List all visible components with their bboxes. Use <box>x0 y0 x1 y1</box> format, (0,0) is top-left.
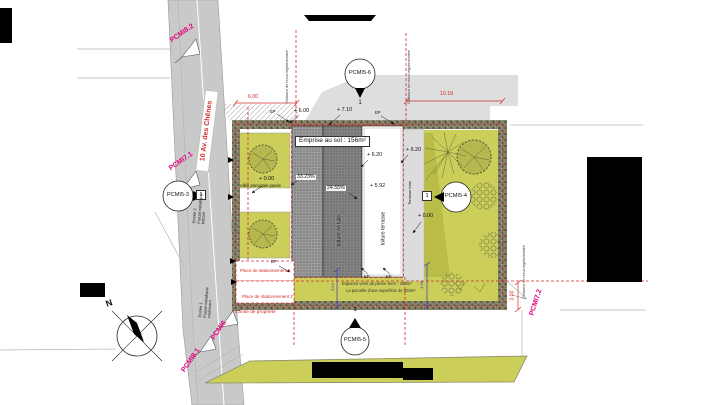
section-bottom-number: 1 <box>347 307 363 313</box>
elevation-ridge: + 7.10 <box>337 108 352 113</box>
tree <box>249 145 277 173</box>
section-bottom-label: PCMI5-5 <box>335 338 375 344</box>
elevation-terrace: + 0.00 <box>418 214 433 219</box>
shrub-cluster <box>479 232 505 258</box>
parking1-label: Place de stationnement 1 <box>240 269 291 274</box>
property-limit-label: Limite de propriété <box>236 311 276 316</box>
tree <box>249 220 277 248</box>
elevation-flat-roof-low: + 5.92 <box>369 184 386 189</box>
green-area-note-1: Espaces verts de pleine terre : 252m² <box>342 282 412 286</box>
roof-slope-right: 24.55% <box>326 186 346 191</box>
section-top-label: PCMI5-6 <box>340 71 380 77</box>
ep-downspout: EP <box>270 110 276 114</box>
site-plan: 10 Av. des Chênes PCMI8.2 PCMI7.1 PCMI6 … <box>0 0 721 405</box>
elevation-roof-deck: + 6.20 <box>406 148 421 153</box>
dim-green-right: 4.36 <box>420 275 424 295</box>
tile-roof-label: toiture en tuile <box>338 201 343 261</box>
section-top-number: 1 <box>352 100 368 106</box>
elevation-street: + 0.00 <box>259 177 274 182</box>
elevation-flat-roof: + 6.20 <box>366 153 383 158</box>
wood-deck-label: Terrasse bois <box>408 173 412 213</box>
plan-graphics <box>0 0 721 405</box>
tree-large <box>457 140 491 174</box>
section-right-number: 1 <box>422 191 432 201</box>
ep-downspout: EP <box>375 111 381 115</box>
ep-downspout: EP <box>386 275 392 279</box>
section-left-label: PCMI5-3 <box>158 193 198 199</box>
dim-front-width: 6.00 <box>248 95 258 100</box>
elevation-eave: + 6.00 <box>294 109 309 114</box>
building-footprint <box>292 126 425 282</box>
setback-note-right: Distance de recul réglementaire <box>523 237 527 307</box>
section-right-label: PCMI5-4 <box>436 194 476 200</box>
footprint-title: Emprise au sol : 156m² <box>295 136 370 147</box>
ep-downspout: EP <box>364 275 370 279</box>
main-path-label: Allée principale pavée <box>240 184 281 188</box>
dim-rear-width: 10.18 <box>440 92 453 97</box>
parking2-label: Place de stationnement 2 <box>242 295 293 300</box>
setback-note-mid: Distance de recul réglementaire <box>408 42 412 112</box>
flat-roof-label: toiture terrasse <box>382 199 387 259</box>
ep-downspout: EP <box>271 260 277 264</box>
compass-rose <box>112 311 162 361</box>
setback-note-left: Distance de recul réglementaire <box>286 42 290 112</box>
dim-green-left: 3.94 <box>331 277 335 297</box>
dim-side-setback: 3.00 <box>510 286 515 306</box>
green-area-note-2: La parcelle d'une superficie de 502m² <box>346 289 416 293</box>
roof-slope-left: 33.23% <box>296 175 316 180</box>
shrub-cluster <box>440 272 464 296</box>
